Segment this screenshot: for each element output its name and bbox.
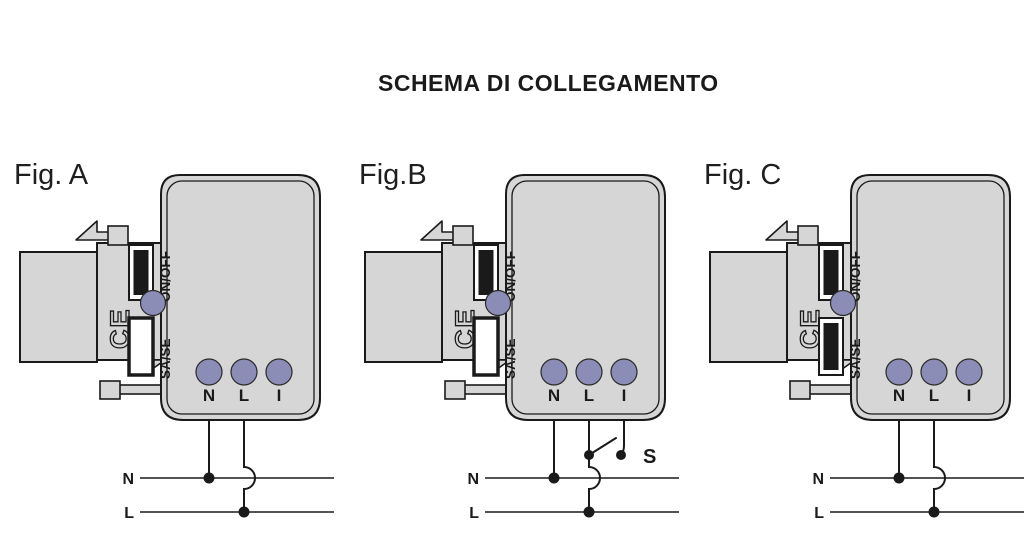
programming-button [141,291,166,316]
wire-i [621,419,624,453]
on-off-switch-actuator [824,250,839,295]
terminal-I [266,359,292,385]
wire-l-with-hop [244,419,255,512]
supply-line-label-N: N [467,471,479,488]
terminal-N [541,359,567,385]
clip-hook-top [76,221,110,240]
figure-b-diagram: ON/OFFCESA/SENLINLS [345,155,685,549]
programming-button [486,291,511,316]
clip-bar-bottom [809,385,852,394]
terminal-label-N: N [548,386,560,405]
figure-c: Fig. C ON/OFFCESA/SENLINL [690,155,1030,549]
terminal-N [196,359,222,385]
clip-bar-bottom [464,385,507,394]
terminal-block: NLI [886,359,982,405]
wiring-diagram-page: SCHEMA DI COLLEGAMENTO Fig. A ON/OFFCESA… [0,0,1033,549]
sa-se-switch [474,318,498,375]
junction-dot-l [239,507,250,518]
switch-contact-right [616,450,626,460]
terminal-N [886,359,912,385]
terminal-block: NLI [196,359,292,405]
wire-l-with-hop [934,419,945,512]
junction-dot-n [894,473,905,484]
terminal-label-L: L [239,386,249,405]
terminal-I [611,359,637,385]
supply-line-label-N: N [812,471,824,488]
page-title: SCHEMA DI COLLEGAMENTO [378,70,719,97]
junction-dot-l [584,507,595,518]
wiring: NL [812,419,1024,522]
mounting-block [365,252,442,362]
terminal-label-I: I [277,386,282,405]
junction-dot-l [929,507,940,518]
wiring: NL [122,419,334,522]
clip-hook-top [421,221,455,240]
switch-lever [589,438,616,455]
sa-se-label: SA/SE [503,338,518,379]
terminal-label-L: L [929,386,939,405]
clip-tab-bottom [100,381,120,399]
clip-tab-top [453,226,473,245]
supply-line-label-L: L [814,505,824,522]
figure-b: Fig.B ON/OFFCESA/SENLINLS [345,155,685,549]
terminal-I [956,359,982,385]
sa-se-switch [129,318,153,375]
clip-tab-top [108,226,128,245]
figure-a: Fig. A ON/OFFCESA/SENLINL [0,155,340,549]
junction-dot-n [549,473,560,484]
on-off-switch-actuator [134,250,149,295]
terminal-label-L: L [584,386,594,405]
terminal-label-I: I [967,386,972,405]
programming-button [831,291,856,316]
supply-line-label-L: L [469,505,479,522]
mounting-block [20,252,97,362]
mounting-block [710,252,787,362]
sa-se-label: SA/SE [848,338,863,379]
figure-c-diagram: ON/OFFCESA/SENLINL [690,155,1030,549]
terminal-label-I: I [622,386,627,405]
clip-tab-top [798,226,818,245]
wire-l-with-hop [589,419,600,512]
terminal-block: NLI [541,359,637,405]
terminal-label-N: N [893,386,905,405]
switch-label: S [643,446,656,468]
clip-hook-top [766,221,800,240]
sa-se-switch-actuator [824,323,839,370]
figure-a-diagram: ON/OFFCESA/SENLINL [0,155,340,549]
terminal-L [921,359,947,385]
terminal-label-N: N [203,386,215,405]
on-off-switch-actuator [479,250,494,295]
supply-line-label-N: N [122,471,134,488]
clip-tab-bottom [790,381,810,399]
junction-dot-n [204,473,215,484]
supply-line-label-L: L [124,505,134,522]
clip-tab-bottom [445,381,465,399]
clip-bar-bottom [119,385,162,394]
sa-se-label: SA/SE [158,338,173,379]
terminal-L [231,359,257,385]
wiring: NLS [467,419,679,522]
terminal-L [576,359,602,385]
